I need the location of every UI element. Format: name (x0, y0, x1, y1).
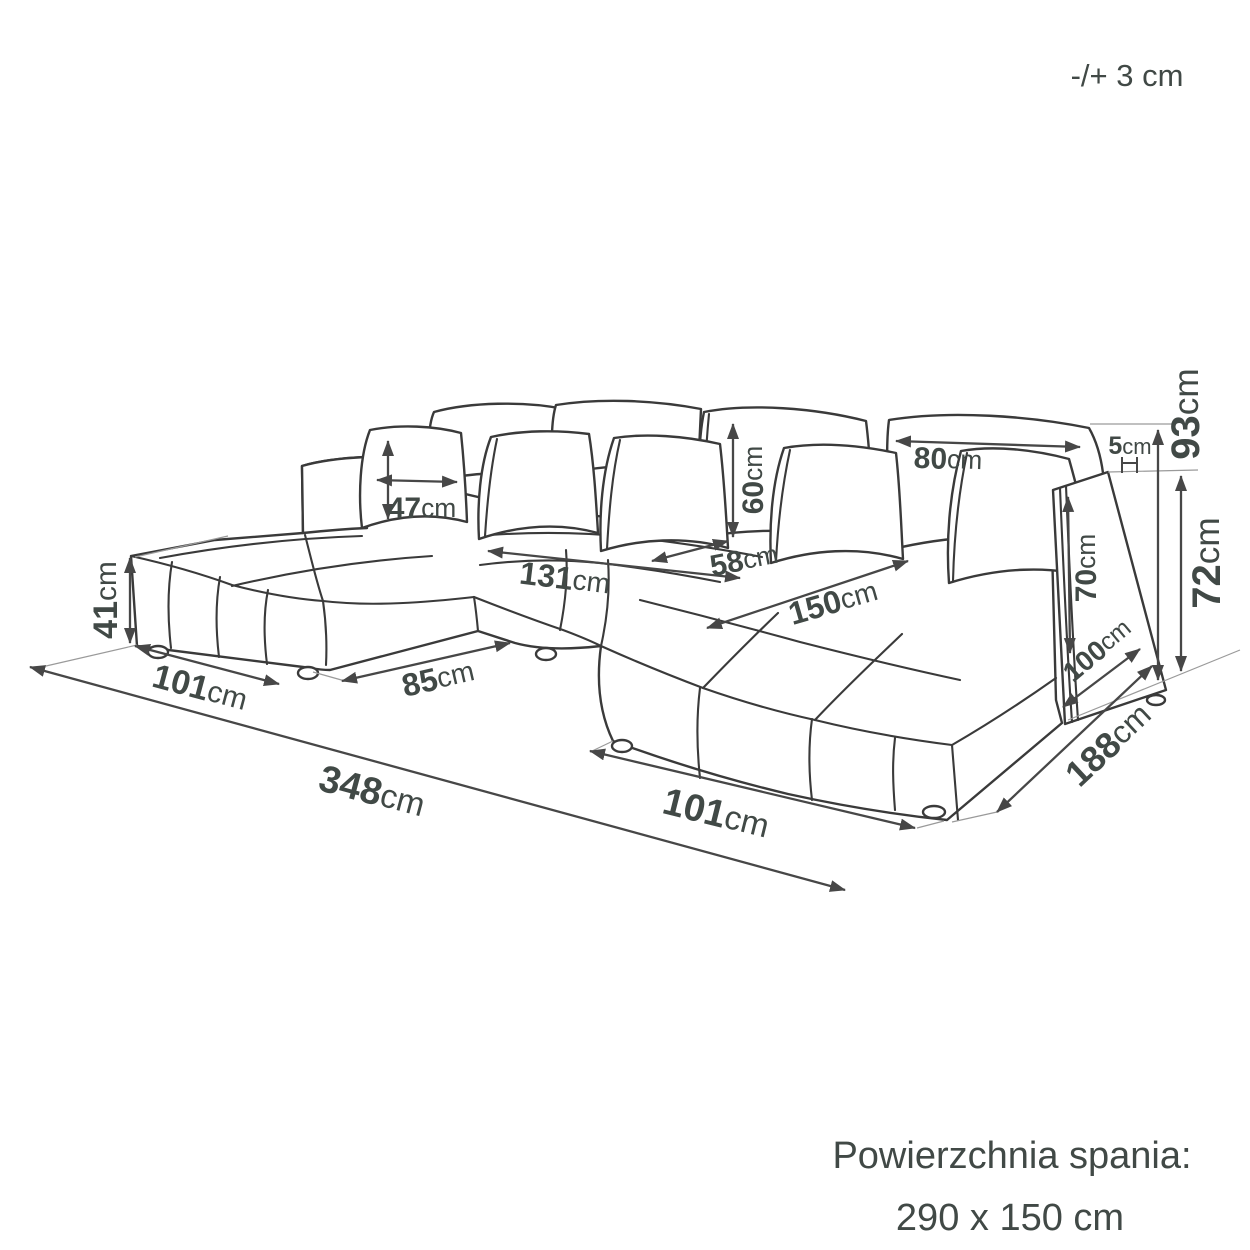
sofa-dimension-diagram: 47cm 60cm 80cm 5cm 93cm 72cm 70cm 100cm … (0, 0, 1250, 1250)
dim-left-chaise-width: 101cm (148, 657, 251, 719)
dim-side-height: 72cm (1185, 517, 1229, 608)
sofa-illustration (131, 401, 1166, 820)
dim-total-width: 348cm (314, 758, 429, 827)
dim-total-height: 93cm (1164, 368, 1208, 459)
dim-pillow-width: 47cm (388, 492, 457, 525)
dim-back-gap: 5cm (1108, 432, 1151, 460)
throw-pillow (770, 445, 903, 563)
dim-armrest-height: 70cm (1070, 534, 1103, 603)
bracket-back-gap (1122, 457, 1137, 473)
sofa-leg (612, 740, 632, 752)
dim-back-cushion-width: 80cm (913, 441, 983, 476)
tolerance-note: -/+ 3 cm (1071, 58, 1184, 93)
sofa-leg (923, 806, 945, 818)
left-armrest (302, 457, 367, 533)
throw-pillow (600, 436, 728, 551)
sleeping-surface-size: 290 x 150 cm (896, 1197, 1124, 1239)
dim-back-cushion-height: 60cm (737, 446, 770, 515)
sofa-leg (1147, 695, 1165, 705)
diagram-svg: 47cm 60cm 80cm 5cm 93cm 72cm 70cm 100cm … (0, 0, 1250, 1250)
sofa-leg (536, 648, 556, 660)
sleeping-surface-label: Powierzchnia spania: (832, 1135, 1191, 1177)
dim-seat-height: 41cm (87, 561, 125, 639)
